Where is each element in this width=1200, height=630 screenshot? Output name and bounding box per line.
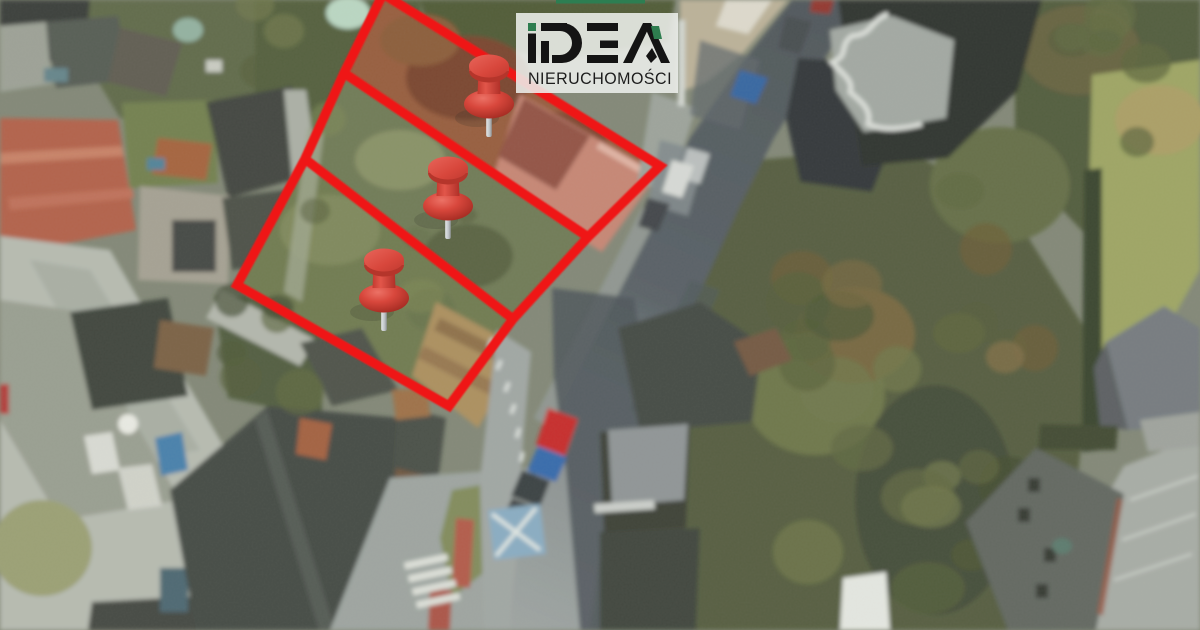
svg-text:NIERUCHOMOŚCI: NIERUCHOMOŚCI: [528, 69, 672, 88]
